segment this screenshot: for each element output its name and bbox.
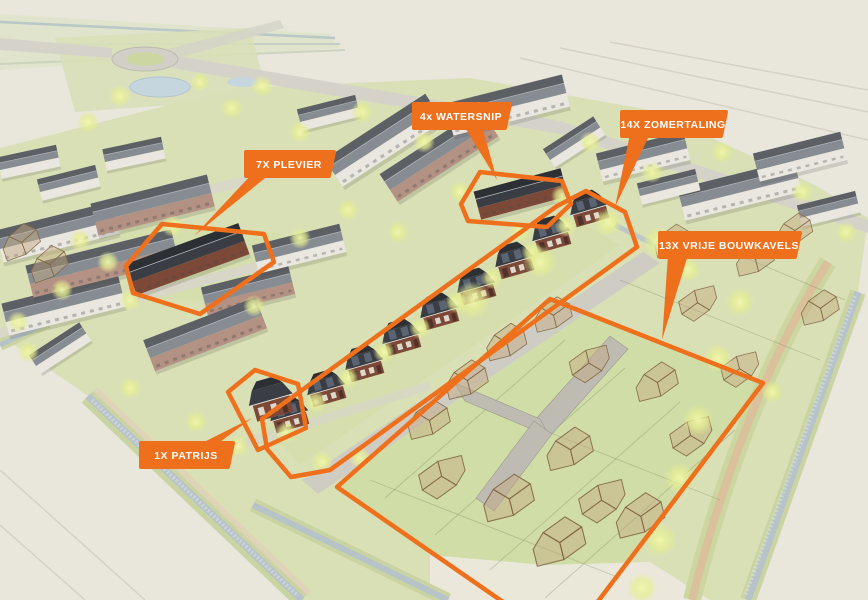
label-text-zomertaling: 14X ZOMERTALING: [620, 119, 725, 131]
pond: [130, 77, 190, 97]
label-text-bouwkavels: 13X VRIJE BOUWKAVELS: [659, 240, 799, 252]
label-text-watersnip: 4x WATERSNIP: [420, 111, 502, 123]
label-text-patrijs: 1X PATRIJS: [154, 450, 218, 462]
roundabout: [112, 47, 178, 71]
site-plan-canvas: 7X PLEVIER 4x WATERSNIP 14X ZOMERTALING …: [0, 0, 868, 600]
label-text-plevier: 7X PLEVIER: [256, 159, 322, 171]
site-plan-rendering: 7X PLEVIER 4x WATERSNIP 14X ZOMERTALING …: [0, 0, 868, 600]
